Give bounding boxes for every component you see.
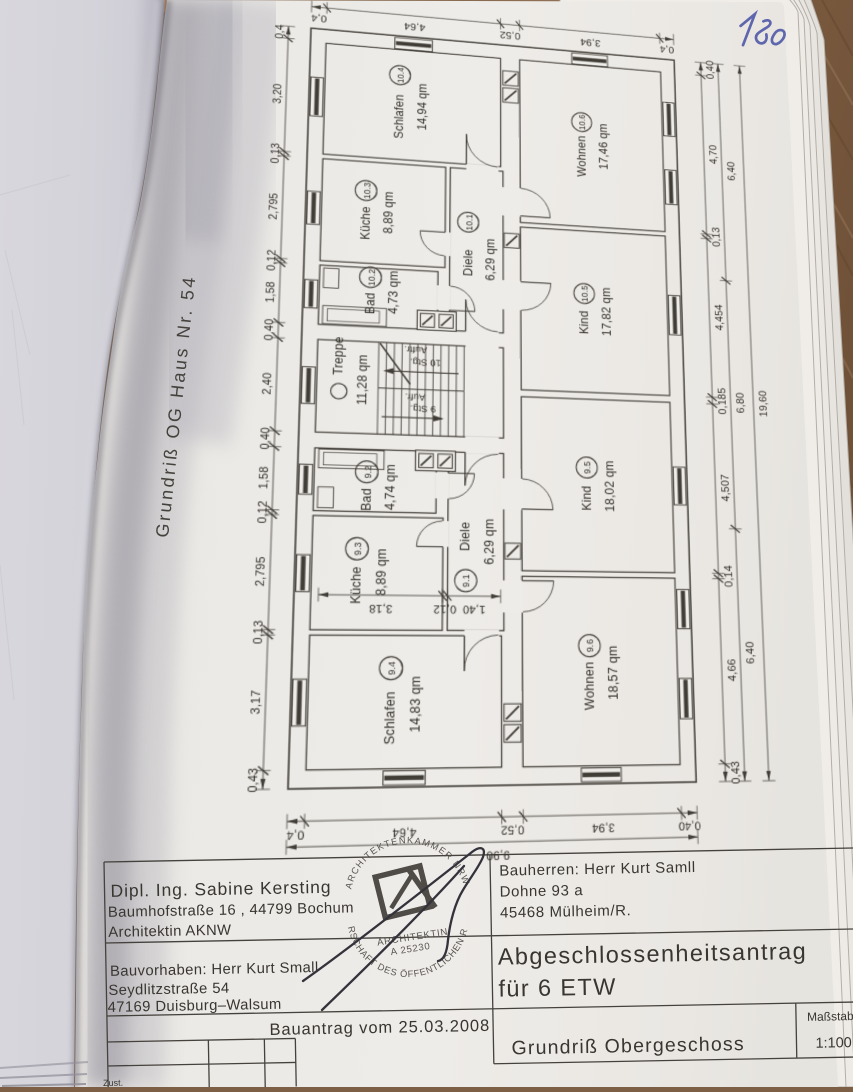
svg-text:Maßstab: Maßstab	[807, 1009, 853, 1024]
svg-text:0,14: 0,14	[723, 565, 736, 587]
svg-text:0,13: 0,13	[250, 620, 265, 644]
svg-text:Schlafen: Schlafen	[382, 692, 397, 745]
svg-text:0,4: 0,4	[660, 44, 674, 56]
svg-text:0,4: 0,4	[286, 828, 304, 843]
svg-text:0,13: 0,13	[268, 142, 282, 163]
svg-text:9.1: 9.1	[462, 574, 472, 587]
svg-text:10.1: 10.1	[465, 214, 475, 231]
svg-text:Dipl. Ing. Sabine Kersting: Dipl. Ing. Sabine Kersting	[110, 877, 331, 901]
svg-text:0,43: 0,43	[730, 761, 743, 784]
svg-text:Bad: Bad	[359, 488, 374, 511]
svg-text:Wohnen: Wohnen	[575, 135, 588, 177]
svg-text:6,29 qm: 6,29 qm	[484, 238, 497, 281]
svg-text:17,46 qm: 17,46 qm	[597, 123, 610, 170]
svg-text:2,795: 2,795	[253, 556, 268, 586]
svg-text:4,64: 4,64	[404, 20, 425, 33]
svg-text:10.6: 10.6	[578, 114, 587, 131]
svg-text:0,40: 0,40	[258, 427, 272, 450]
svg-text:1:100: 1:100	[815, 1035, 852, 1052]
svg-text:8,89 qm: 8,89 qm	[382, 191, 396, 234]
svg-text:0,12: 0,12	[433, 603, 456, 616]
svg-text:0,40: 0,40	[262, 318, 276, 340]
svg-text:1,58: 1,58	[263, 281, 277, 303]
svg-text:8,89 qm: 8,89 qm	[374, 548, 389, 595]
svg-text:Architektin AKNW: Architektin AKNW	[108, 923, 231, 941]
svg-text:Kind: Kind	[578, 310, 591, 334]
svg-text:Grundriß Obergeschoss: Grundriß Obergeschoss	[511, 1033, 745, 1059]
svg-text:10.5: 10.5	[581, 285, 591, 302]
svg-text:17,82 qm: 17,82 qm	[600, 287, 614, 336]
svg-text:10 Stg.: 10 Stg.	[410, 356, 441, 367]
svg-text:0,12: 0,12	[255, 500, 270, 523]
svg-text:Diele: Diele	[461, 249, 474, 277]
svg-text:14,94 qm: 14,94 qm	[415, 83, 429, 131]
svg-text:9.4: 9.4	[387, 661, 398, 675]
svg-text:4,66: 4,66	[726, 659, 739, 682]
svg-text:6,40: 6,40	[744, 641, 757, 663]
svg-text:3,20: 3,20	[270, 83, 284, 104]
svg-text:10.3: 10.3	[363, 182, 373, 200]
svg-text:Auftr.: Auftr.	[404, 344, 427, 355]
svg-text:9.6: 9.6	[586, 639, 596, 653]
svg-text:4,70: 4,70	[708, 145, 720, 165]
svg-text:4,73 qm: 4,73 qm	[387, 270, 401, 314]
svg-text:0,40: 0,40	[705, 60, 717, 80]
svg-text:1,40: 1,40	[463, 603, 486, 616]
svg-text:Treppe: Treppe	[331, 336, 346, 375]
svg-text:3,18: 3,18	[369, 602, 393, 615]
svg-text:11,28 qm: 11,28 qm	[355, 354, 370, 405]
svg-text:0,43: 0,43	[245, 768, 260, 793]
svg-text:Zust.: Zust.	[103, 1078, 123, 1087]
svg-text:9.5: 9.5	[583, 461, 593, 474]
svg-text:18,02 qm: 18,02 qm	[603, 460, 617, 512]
svg-text:Schlafen: Schlafen	[392, 94, 406, 139]
svg-text:0,52: 0,52	[501, 823, 525, 837]
svg-text:0,12: 0,12	[264, 249, 278, 271]
svg-text:10.4: 10.4	[397, 67, 407, 84]
svg-text:18,57 qm: 18,57 qm	[606, 645, 621, 699]
svg-text:47169 Duisburg–Walsum: 47169 Duisburg–Walsum	[108, 997, 282, 1016]
svg-text:6,29 qm: 6,29 qm	[483, 519, 497, 565]
svg-text:Küche: Küche	[358, 206, 372, 240]
svg-text:2,795: 2,795	[266, 192, 280, 220]
svg-text:0,185: 0,185	[716, 387, 729, 414]
svg-text:10.2: 10.2	[367, 269, 377, 287]
svg-text:Küche: Küche	[348, 566, 363, 603]
svg-text:3,94: 3,94	[592, 821, 615, 835]
svg-text:9.2: 9.2	[363, 465, 374, 478]
svg-text:9.3: 9.3	[353, 542, 364, 556]
svg-text:4,454: 4,454	[713, 304, 726, 331]
svg-text:Diele: Diele	[459, 522, 473, 551]
svg-text:0,13: 0,13	[711, 227, 723, 247]
svg-text:6,40: 6,40	[726, 161, 738, 181]
svg-text:2,40: 2,40	[260, 372, 274, 395]
svg-text:0,4: 0,4	[273, 24, 286, 39]
svg-text:6,80: 6,80	[735, 392, 748, 413]
svg-text:0,52: 0,52	[500, 29, 521, 42]
svg-text:45468 Mülheim/R.: 45468 Mülheim/R.	[500, 902, 632, 921]
svg-text:Aufr.: Aufr.	[405, 391, 425, 401]
svg-text:Wohnen: Wohnen	[583, 662, 597, 711]
svg-text:19,60: 19,60	[757, 390, 770, 417]
svg-text:9 Stg.: 9 Stg.	[410, 403, 436, 414]
svg-text:für 6 ETW: für 6 ETW	[498, 973, 617, 1001]
svg-text:Kind: Kind	[580, 486, 594, 511]
svg-text:Seydlitzstraße 54: Seydlitzstraße 54	[108, 981, 229, 999]
svg-text:14,83 qm: 14,83 qm	[408, 676, 423, 733]
svg-text:4,507: 4,507	[720, 474, 733, 502]
svg-text:3,17: 3,17	[248, 690, 263, 714]
svg-text:1,58: 1,58	[256, 466, 270, 489]
svg-text:3,94: 3,94	[580, 36, 600, 49]
svg-text:Dohne 93 a: Dohne 93 a	[499, 882, 583, 901]
svg-text:4,64: 4,64	[392, 825, 416, 840]
svg-text:0,4: 0,4	[311, 12, 327, 25]
svg-text:9,90: 9,90	[486, 848, 510, 863]
svg-text:4,74 qm: 4,74 qm	[383, 464, 398, 510]
